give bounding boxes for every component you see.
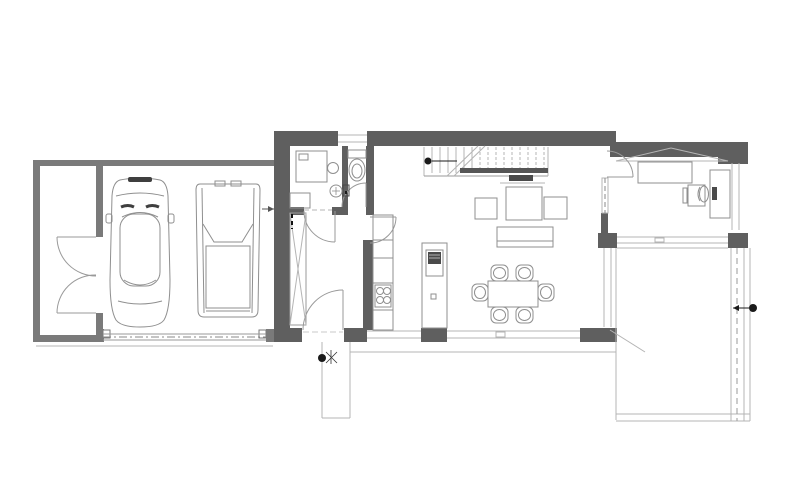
dining-chair-bottom-1-seat (494, 310, 506, 321)
garage-top-wall (96, 160, 274, 166)
dining-chair-left-seat (475, 287, 486, 299)
kitchen-door-arc (370, 217, 396, 243)
tv (509, 175, 533, 181)
car-sedan-hood-line (116, 193, 164, 196)
storage-bottom-wall (33, 335, 103, 342)
cooktop-burner-2 (384, 288, 391, 295)
office-desk-chair (700, 186, 709, 202)
utility-wc-right-wall (366, 138, 374, 215)
laundry-basket (328, 163, 339, 174)
entrance-marker-fan (326, 350, 337, 364)
office-south-window-tick (655, 238, 664, 242)
car-van-cabin (206, 246, 250, 308)
office-pier-right (728, 233, 748, 248)
utility-sink-cross (332, 187, 340, 195)
dining-table (488, 281, 538, 307)
storage-door-arc-bottom (57, 275, 96, 313)
garage-left-wall-upper (96, 160, 103, 237)
washing-machine (296, 151, 327, 182)
storage-door-arc-top (57, 237, 96, 276)
house-left-wall (274, 131, 290, 342)
bottom-wall-b (344, 328, 367, 342)
entrance-marker-dot (318, 354, 326, 362)
toilet-bowl-inner (352, 164, 362, 178)
wc-window-gap (338, 131, 367, 146)
bottom-wall-a (274, 328, 302, 342)
car-sedan-rear-glass (124, 280, 156, 285)
house-top-wall (277, 131, 616, 146)
utility-wc-divider-wall (342, 146, 348, 215)
car-van-side-left (202, 188, 204, 313)
garage-bottom-stub-right (266, 329, 274, 342)
kitchen-counter (373, 215, 393, 330)
toilet-tank (348, 150, 366, 158)
cooktop-burner-4 (384, 297, 391, 304)
south-window2-tick (496, 332, 505, 337)
office-side-table-leg (683, 188, 687, 203)
cooktop-burner-1 (377, 288, 384, 295)
wc-wall-item-dot (345, 191, 347, 194)
office-sideboard (638, 162, 692, 183)
hall-utility-door-arc (304, 211, 335, 242)
terrace-marker-arrowhead (733, 305, 739, 311)
dining-chair-right-seat (541, 287, 552, 299)
car-sedan-windshield (122, 213, 158, 218)
cooktop-burner-3 (377, 297, 384, 304)
car-sedan-trunk-line (118, 301, 162, 304)
car-sedan-roof-bar (128, 177, 152, 182)
storage-top-wall (33, 160, 103, 166)
sofa (497, 227, 553, 247)
armchair-left (475, 198, 497, 219)
utility-bottom-wall-right (332, 207, 342, 215)
washing-machine-panel (299, 154, 308, 160)
left-wall-tick-arrowhead (268, 206, 274, 212)
hall-living-wall (363, 240, 373, 330)
floor-plan (0, 0, 800, 482)
car-van-side-right (252, 188, 254, 313)
car-sedan-roof (120, 214, 160, 286)
terrace-marker-dot (749, 304, 757, 312)
dining-chair-bottom-2-seat (519, 310, 531, 321)
office-partition-stub (601, 213, 608, 233)
bottom-wall-c (421, 328, 447, 342)
dining-chair-top-2-seat (519, 268, 531, 279)
office-pier-left (598, 233, 617, 248)
floor-plan-svg (0, 0, 800, 482)
utility-cabinet (290, 193, 310, 208)
storage-left-wall (33, 160, 40, 341)
bottom-wall-d (580, 328, 617, 342)
car-sedan-wiper-right (146, 206, 159, 208)
living-center-table (506, 187, 542, 220)
car-van-windshield (203, 224, 253, 242)
office-side-table (688, 185, 705, 206)
armchair-right (544, 197, 567, 219)
entrance-door-arc (303, 290, 343, 330)
stair-start-dot (425, 158, 432, 165)
car-sedan-wiper-left (121, 206, 134, 208)
dining-chair-top-1-seat (494, 268, 506, 279)
stair-rail (460, 168, 548, 173)
car-sedan-body (110, 178, 170, 327)
fireplace-vent (431, 294, 436, 299)
office-monitor (712, 187, 717, 200)
